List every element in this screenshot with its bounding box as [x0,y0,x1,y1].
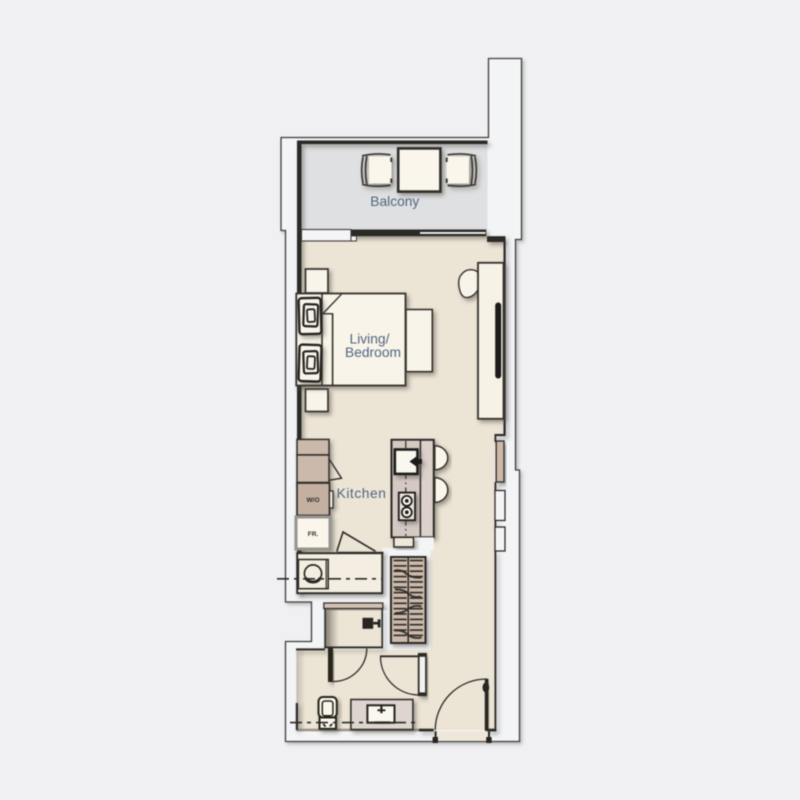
svg-text:Bedroom: Bedroom [345,345,401,360]
svg-text:W/O: W/O [307,497,320,504]
svg-text:FR.: FR. [308,531,319,538]
svg-text:Kitchen: Kitchen [337,486,387,501]
svg-text:Balcony: Balcony [370,194,419,209]
